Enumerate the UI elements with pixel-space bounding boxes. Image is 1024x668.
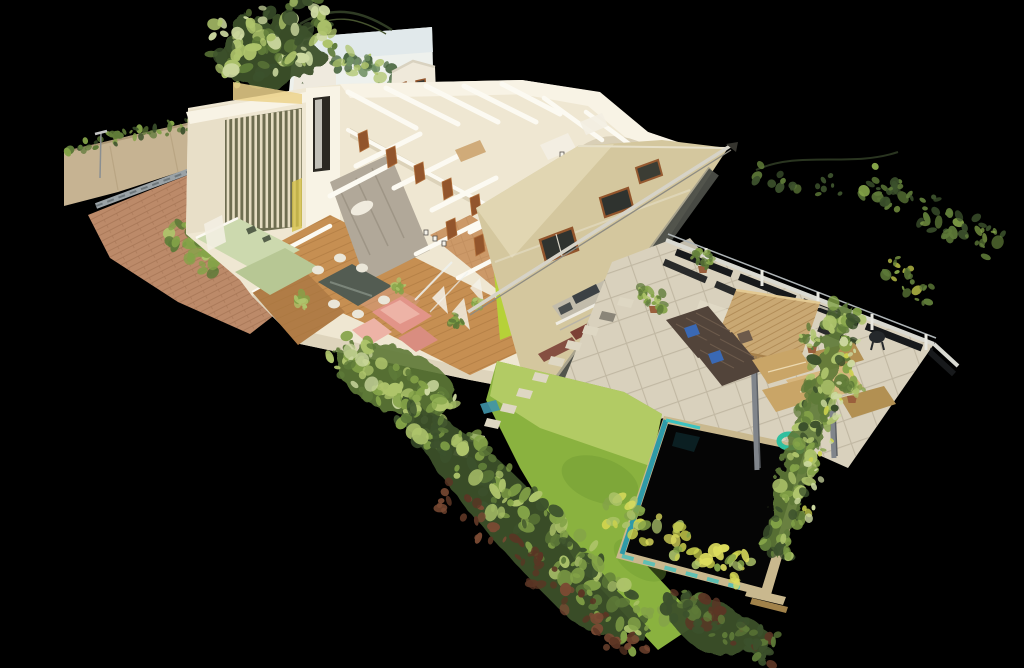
foliage-leaf	[439, 486, 451, 498]
foliage-leaf	[579, 548, 587, 552]
foliage-leaf	[821, 186, 827, 193]
foliage-leaf	[926, 227, 938, 234]
foliage-leaf	[970, 212, 983, 224]
foliage-leaf	[890, 275, 898, 282]
foliage-leaf	[945, 207, 954, 218]
foliage-leaf	[812, 505, 816, 511]
picture-frame	[424, 230, 428, 235]
slat-screen-back	[225, 108, 302, 236]
dining-chair	[378, 296, 390, 305]
picture-frame	[442, 241, 446, 246]
foliage-leaf	[892, 205, 901, 214]
foliage-leaf	[870, 161, 880, 171]
fence-corner-foliage	[878, 255, 936, 306]
dollhouse-scene	[0, 0, 1024, 668]
foliage-leaf	[927, 282, 936, 291]
foliage-leaf	[840, 337, 849, 347]
floating-branches-2	[856, 161, 1007, 261]
foliage-leaf	[980, 252, 992, 261]
foliage-leaf	[888, 258, 893, 263]
foliage-leaf	[459, 512, 469, 523]
slat-screen	[225, 108, 302, 236]
dining-chair	[352, 310, 364, 319]
foliage-leaf	[914, 297, 920, 301]
foliage-leaf	[207, 31, 218, 42]
foliage-leaf	[894, 269, 901, 274]
foliage-leaf	[815, 183, 821, 189]
foliage-leaf	[765, 658, 779, 668]
foliage-leaf	[876, 187, 881, 190]
foliage-leaf	[934, 215, 943, 229]
fence-corner-panel	[930, 352, 954, 374]
foliage-leaf	[638, 288, 642, 296]
foliage-leaf	[930, 205, 942, 217]
foliage-leaf	[827, 172, 834, 179]
foliage-leaf	[837, 190, 844, 196]
picture-frame	[433, 236, 437, 241]
grill	[869, 331, 885, 343]
foliage-leaf	[922, 206, 928, 211]
foliage-leaf	[819, 176, 827, 185]
foliage-leaf	[638, 645, 651, 655]
dining-chair	[312, 266, 324, 275]
foliage-leaf	[831, 183, 834, 188]
dollhouse-viewport[interactable]	[0, 0, 1024, 668]
slat-yellow-accent	[292, 178, 302, 232]
foliage-leaf	[919, 197, 927, 204]
dining-chair	[328, 300, 340, 309]
entry-door-leaf	[315, 99, 322, 169]
foliage-leaf	[82, 137, 89, 145]
pole-sign	[95, 131, 107, 134]
dining-chair	[356, 264, 368, 273]
pole	[100, 132, 101, 178]
foliage-leaf	[815, 191, 823, 196]
foliage-leaf	[816, 475, 825, 484]
foliage-leaf	[445, 495, 453, 507]
foliage-leaf	[129, 129, 134, 134]
foliage-leaf	[910, 279, 916, 285]
foliage-leaf	[602, 643, 611, 652]
foliage-leaf	[246, 9, 252, 17]
dining-chair	[334, 254, 346, 263]
